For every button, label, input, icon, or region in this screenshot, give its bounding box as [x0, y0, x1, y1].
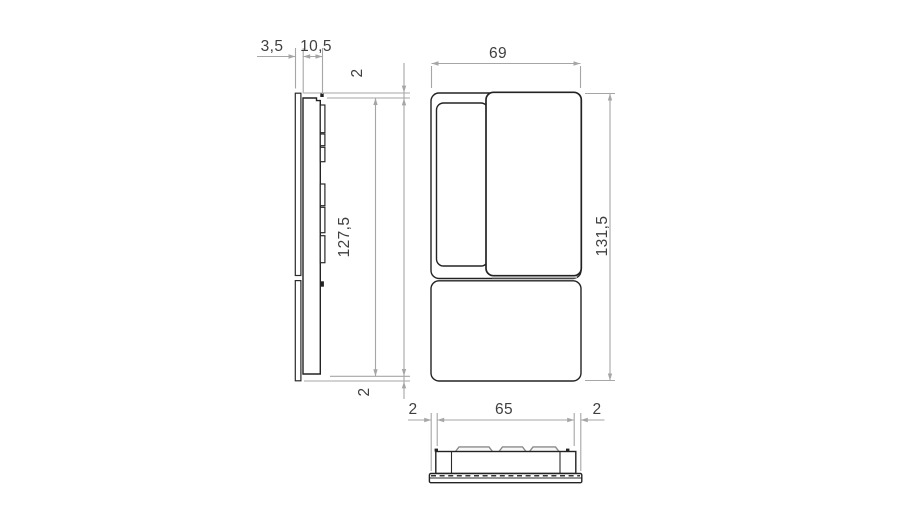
dimension-arrow — [402, 98, 406, 105]
dimension-arrow — [402, 381, 406, 388]
side-tab — [320, 236, 325, 263]
side-tab — [320, 147, 325, 161]
dim-label-plate-thickness: 3,5 — [261, 38, 284, 55]
dimension-arrow — [608, 374, 612, 381]
side-plate-upper — [295, 93, 301, 275]
dim-label-width: 69 — [489, 45, 507, 62]
dimension-arrow — [402, 86, 406, 93]
front-lower-section — [431, 281, 581, 381]
front-left-button — [437, 103, 489, 266]
dimension-arrow — [567, 418, 574, 422]
bottom-body — [436, 452, 576, 474]
side-plate-lower — [295, 281, 301, 381]
dim-label-body-height: 127,5 — [336, 217, 353, 258]
bottom-corner-mark — [435, 449, 438, 452]
dimension-arrow — [424, 418, 431, 422]
bottom-view: 2 65 2 — [408, 401, 605, 483]
side-tab — [320, 105, 325, 133]
front-right-panel — [486, 92, 581, 275]
dimension-arrow — [574, 61, 581, 65]
dimension-arrow — [289, 54, 296, 58]
dim-label-left-offset: 2 — [408, 401, 417, 418]
side-view: 3,5 10,5 2 2 127,5 — [257, 38, 410, 399]
front-view: 69 131,5 — [431, 45, 615, 381]
dim-label-height: 131,5 — [594, 216, 611, 257]
technical-drawing-canvas: 3,5 10,5 2 2 127,5 69 — [0, 0, 920, 520]
dimension-arrow — [373, 98, 377, 105]
dim-label-top-offset: 2 — [349, 68, 366, 77]
dim-label-body-depth: 10,5 — [300, 38, 332, 55]
side-clip-mark — [320, 281, 324, 286]
side-tab — [320, 184, 325, 206]
bottom-corner-mark — [566, 449, 569, 452]
dimension-arrow — [432, 61, 439, 65]
dimension-arrow — [402, 369, 406, 376]
side-tab — [320, 207, 325, 232]
side-tab — [320, 134, 325, 146]
dim-label-bottom-offset: 2 — [356, 387, 373, 396]
dimension-arrow — [608, 94, 612, 101]
dim-label-body-width: 65 — [495, 401, 513, 418]
drawing-svg: 3,5 10,5 2 2 127,5 69 — [0, 0, 920, 520]
dim-label-right-offset: 2 — [592, 401, 601, 418]
dimension-arrow — [373, 369, 377, 376]
dimension-arrow — [581, 418, 588, 422]
side-body — [303, 98, 320, 374]
dimension-arrow — [437, 418, 444, 422]
